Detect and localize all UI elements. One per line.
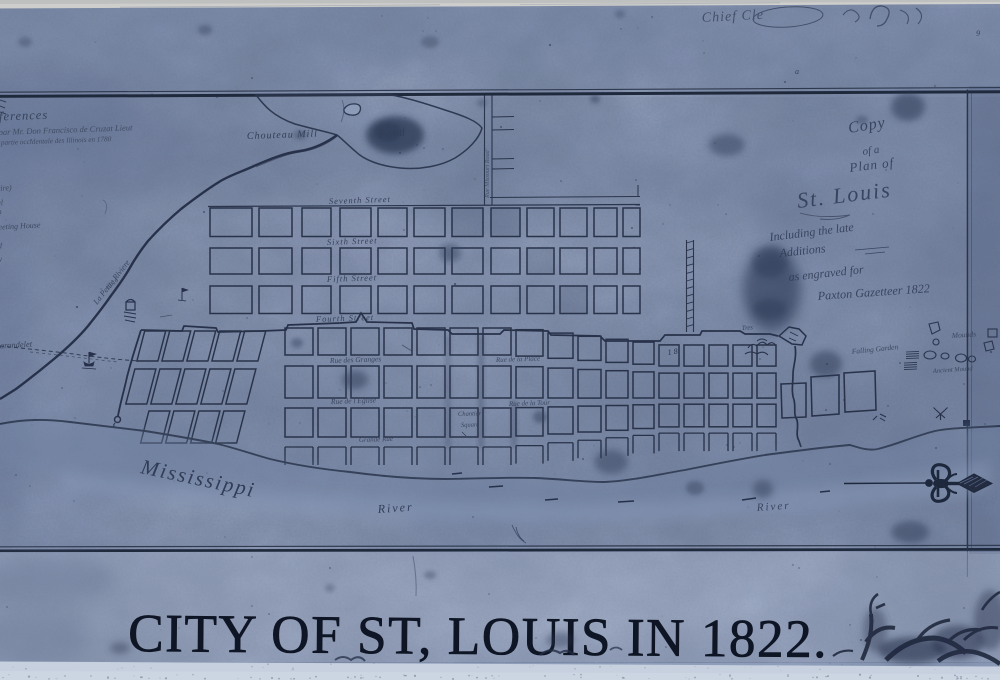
svg-text:CITY OF ST, LOUIS IN 1822.: CITY OF ST, LOUIS IN 1822.	[128, 603, 828, 669]
